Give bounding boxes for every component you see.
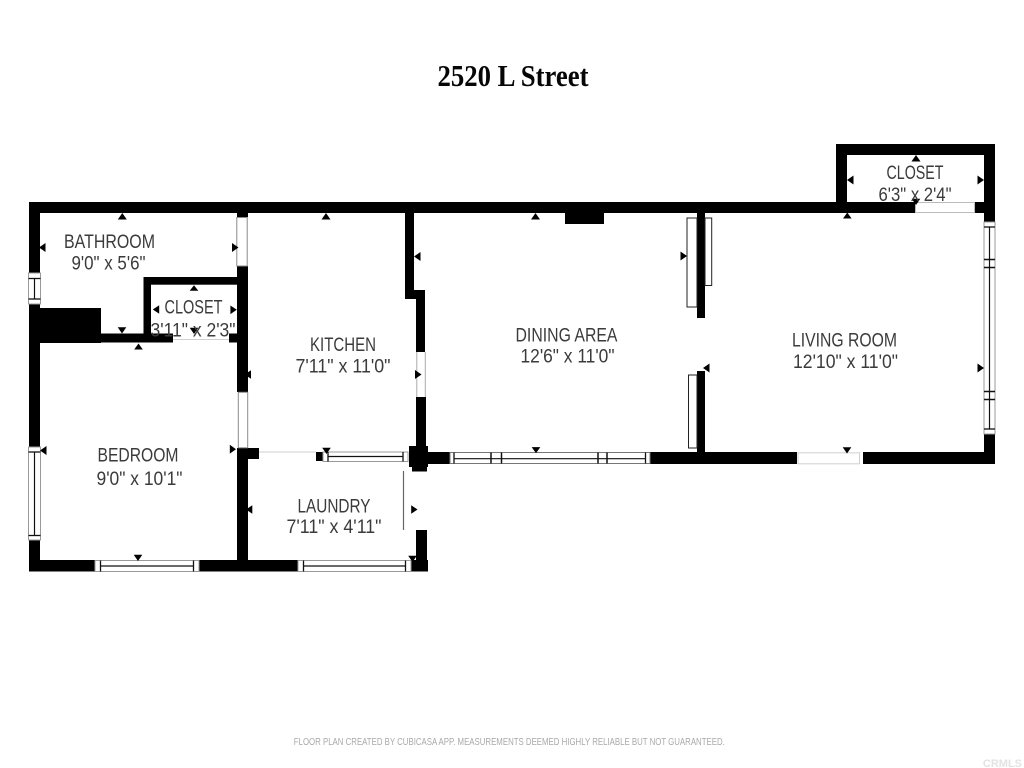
svg-text:FLOOR PLAN CREATED BY CUBICASA: FLOOR PLAN CREATED BY CUBICASA APP. MEAS… — [294, 736, 725, 748]
svg-text:7'11" x 4'11": 7'11" x 4'11" — [287, 517, 382, 538]
svg-text:BEDROOM: BEDROOM — [98, 446, 179, 467]
svg-text:6'3" x 2'4": 6'3" x 2'4" — [879, 185, 952, 206]
svg-text:7'11" x 11'0": 7'11" x 11'0" — [296, 357, 391, 378]
svg-text:CLOSET: CLOSET — [887, 163, 944, 184]
svg-text:LIVING ROOM: LIVING ROOM — [792, 331, 897, 352]
svg-text:KITCHEN: KITCHEN — [310, 335, 376, 356]
svg-text:9'0" x 10'1": 9'0" x 10'1" — [97, 469, 183, 490]
svg-text:12'6" x 11'0": 12'6" x 11'0" — [521, 347, 615, 368]
svg-text:BATHROOM: BATHROOM — [64, 232, 155, 253]
svg-text:12'10" x 11'0": 12'10" x 11'0" — [793, 352, 898, 373]
svg-text:DINING AREA: DINING AREA — [516, 326, 618, 347]
svg-text:CLOSET: CLOSET — [165, 298, 223, 319]
svg-text:CRMLS: CRMLS — [983, 758, 1022, 768]
svg-text:2520 L Street: 2520 L Street — [438, 59, 590, 93]
svg-text:9'0" x 5'6": 9'0" x 5'6" — [72, 254, 146, 275]
svg-text:LAUNDRY: LAUNDRY — [298, 497, 371, 518]
svg-text:3'11" x 2'3": 3'11" x 2'3" — [151, 321, 236, 342]
